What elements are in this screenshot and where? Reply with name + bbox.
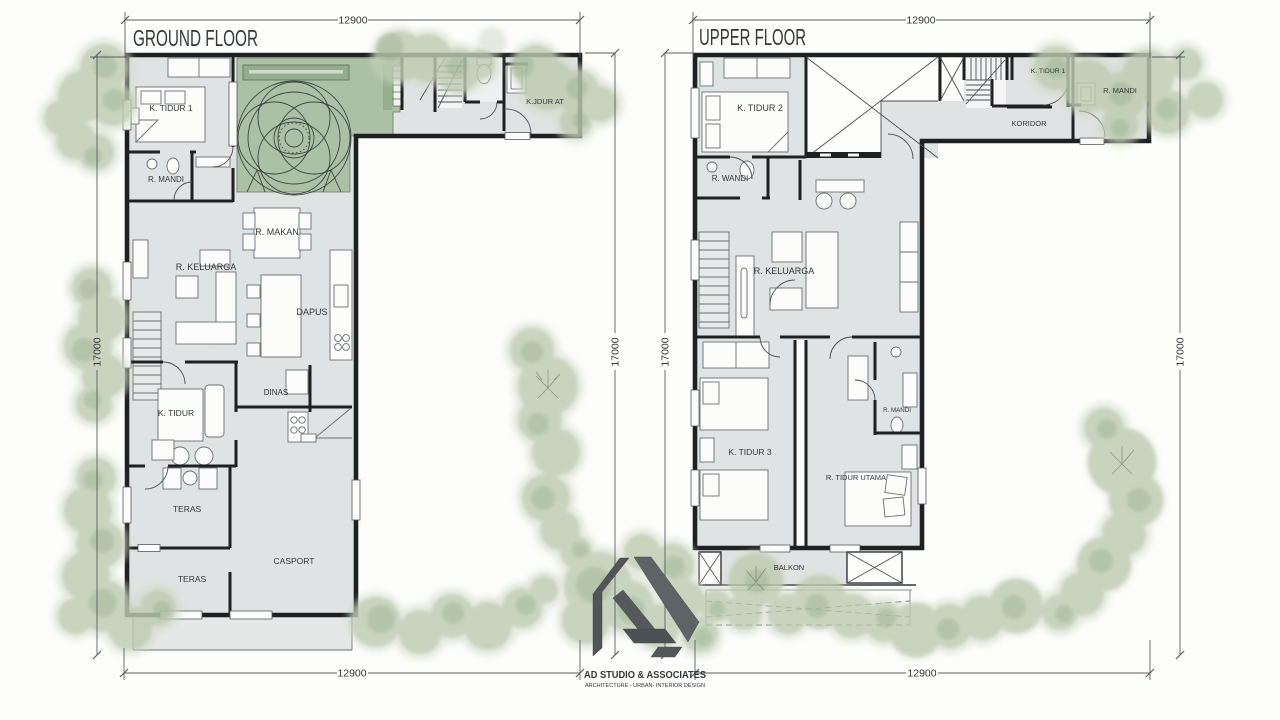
svg-text:12900: 12900 (338, 15, 367, 27)
svg-text:12900: 12900 (906, 15, 935, 27)
svg-text:K.JDUR AT: K.JDUR AT (526, 97, 564, 106)
svg-text:TERAS: TERAS (173, 504, 202, 514)
svg-text:CASPORT: CASPORT (274, 556, 315, 566)
svg-text:BALKON: BALKON (774, 563, 804, 572)
svg-text:K. TIDUR 1: K. TIDUR 1 (1031, 68, 1066, 75)
svg-text:DAPUS: DAPUS (296, 307, 327, 317)
svg-text:R. KELUARGA: R. KELUARGA (176, 262, 237, 272)
svg-text:K. TIDUR: K. TIDUR (158, 408, 194, 418)
svg-text:TERAS: TERAS (178, 574, 207, 584)
svg-text:AD STUDIO & ASSOCIATES: AD STUDIO & ASSOCIATES (584, 669, 706, 681)
svg-text:R. MANDI: R. MANDI (148, 175, 184, 184)
svg-text:R. MAKAN: R. MAKAN (255, 227, 299, 237)
svg-text:K. TIDUR 1: K. TIDUR 1 (149, 103, 193, 113)
svg-text:17000: 17000 (660, 337, 672, 366)
svg-text:12900: 12900 (337, 668, 366, 680)
svg-text:KORIDOR: KORIDOR (1011, 119, 1047, 128)
svg-text:R. WANDI: R. WANDI (712, 174, 749, 183)
svg-text:17000: 17000 (610, 337, 622, 366)
svg-text:R. MANDI: R. MANDI (883, 407, 911, 414)
svg-text:GROUND FLOOR: GROUND FLOOR (133, 25, 258, 51)
svg-text:DINAS: DINAS (264, 388, 288, 397)
svg-text:K. TIDUR 2: K. TIDUR 2 (737, 103, 783, 113)
svg-text:UPPER FLOOR: UPPER FLOOR (699, 24, 806, 50)
svg-text:12900: 12900 (907, 668, 936, 680)
svg-text:R. TIDUR UTAMA: R. TIDUR UTAMA (826, 473, 886, 482)
svg-text:R. MANDI: R. MANDI (1103, 86, 1137, 95)
svg-text:R. KELUARGA: R. KELUARGA (754, 266, 815, 276)
svg-text:17000: 17000 (92, 337, 104, 366)
svg-text:17000: 17000 (1175, 337, 1187, 366)
svg-text:K. TIDUR 3: K. TIDUR 3 (728, 447, 772, 457)
svg-text:ARCHITECTURE - URBAN- INTERIOR: ARCHITECTURE - URBAN- INTERIOR DESIGN (585, 683, 705, 689)
